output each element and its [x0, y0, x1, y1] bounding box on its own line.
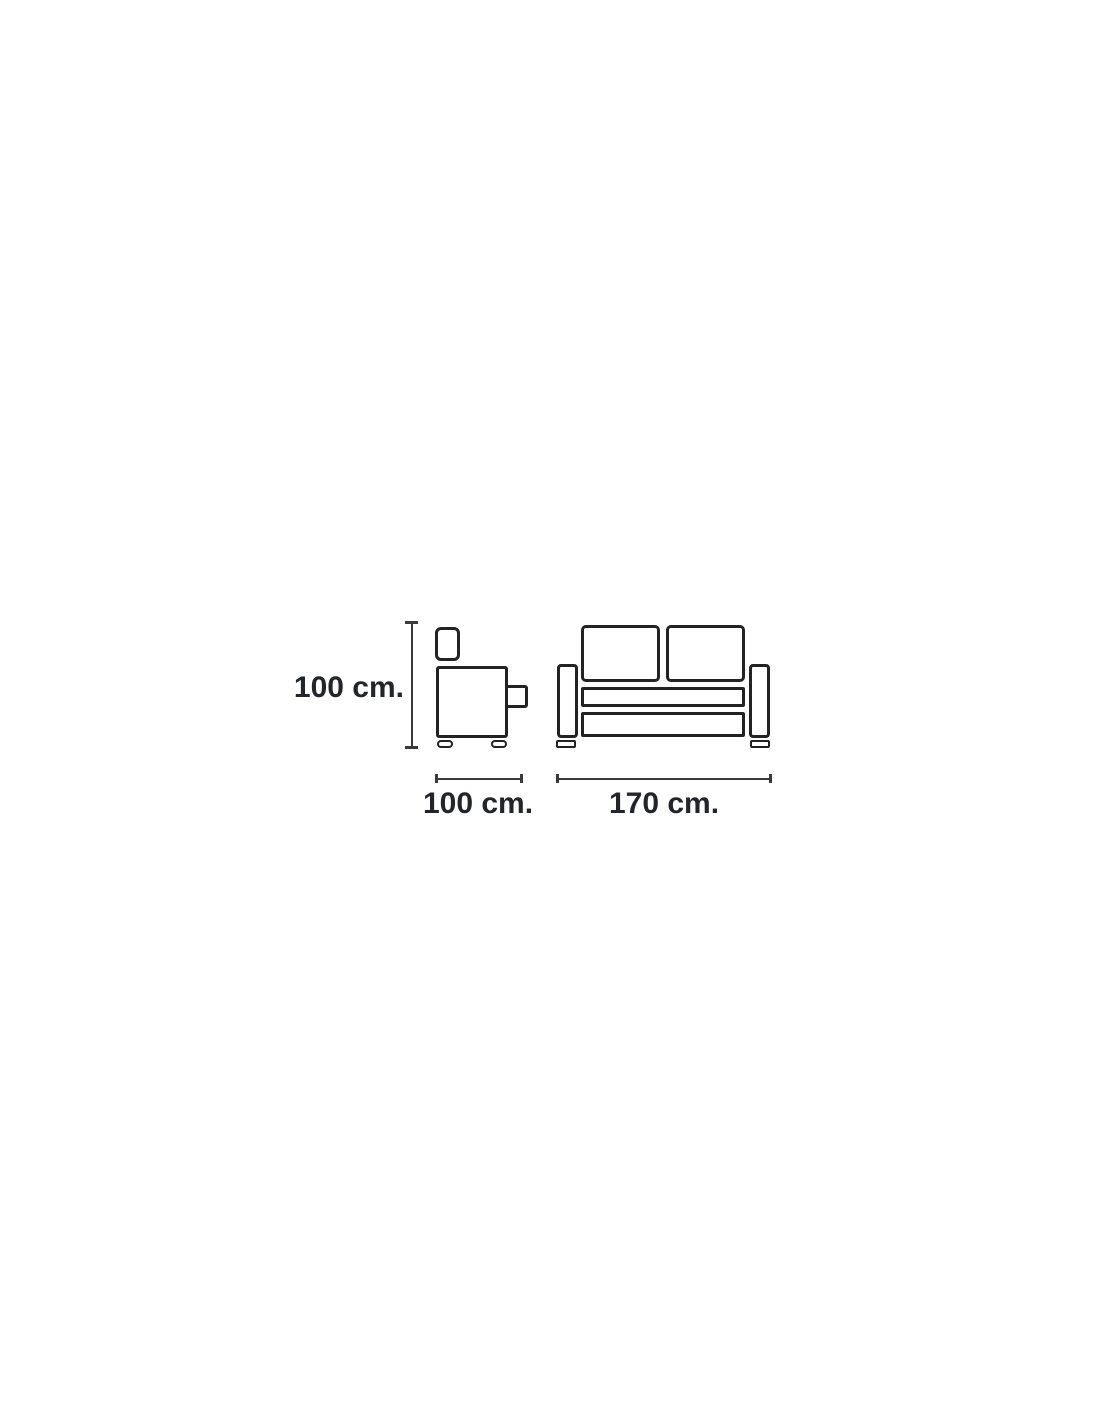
front-armrest-right [749, 664, 770, 738]
dimension-tick-right [769, 774, 772, 783]
side-body [436, 666, 508, 738]
dimension-line-horizontal [556, 778, 772, 780]
height-label: 100 cm. [270, 672, 404, 704]
width-dimension-line [556, 774, 772, 783]
front-armrest-left [557, 664, 578, 738]
dimension-line-horizontal [435, 778, 523, 780]
height-dimension-line [405, 621, 418, 749]
side-headrest-cushion [435, 627, 460, 661]
front-base [581, 712, 745, 737]
side-armrest-knob [505, 685, 528, 708]
dimension-line-vertical [411, 621, 413, 749]
front-seat [581, 687, 745, 707]
dimension-tick-right [520, 774, 523, 783]
side-foot-right [491, 740, 507, 748]
sofa-dimension-diagram: 100 cm. 100 cm. 170 cm. [0, 0, 1100, 1422]
width-label: 170 cm. [594, 788, 734, 820]
front-foot-left [556, 740, 576, 748]
front-foot-right [750, 740, 770, 748]
front-back-cushion-right [666, 625, 745, 682]
depth-label: 100 cm. [408, 788, 548, 820]
side-foot-left [437, 740, 453, 748]
depth-dimension-line [435, 774, 523, 783]
front-back-cushion-left [581, 625, 660, 682]
dimension-cap-bottom [405, 746, 418, 749]
